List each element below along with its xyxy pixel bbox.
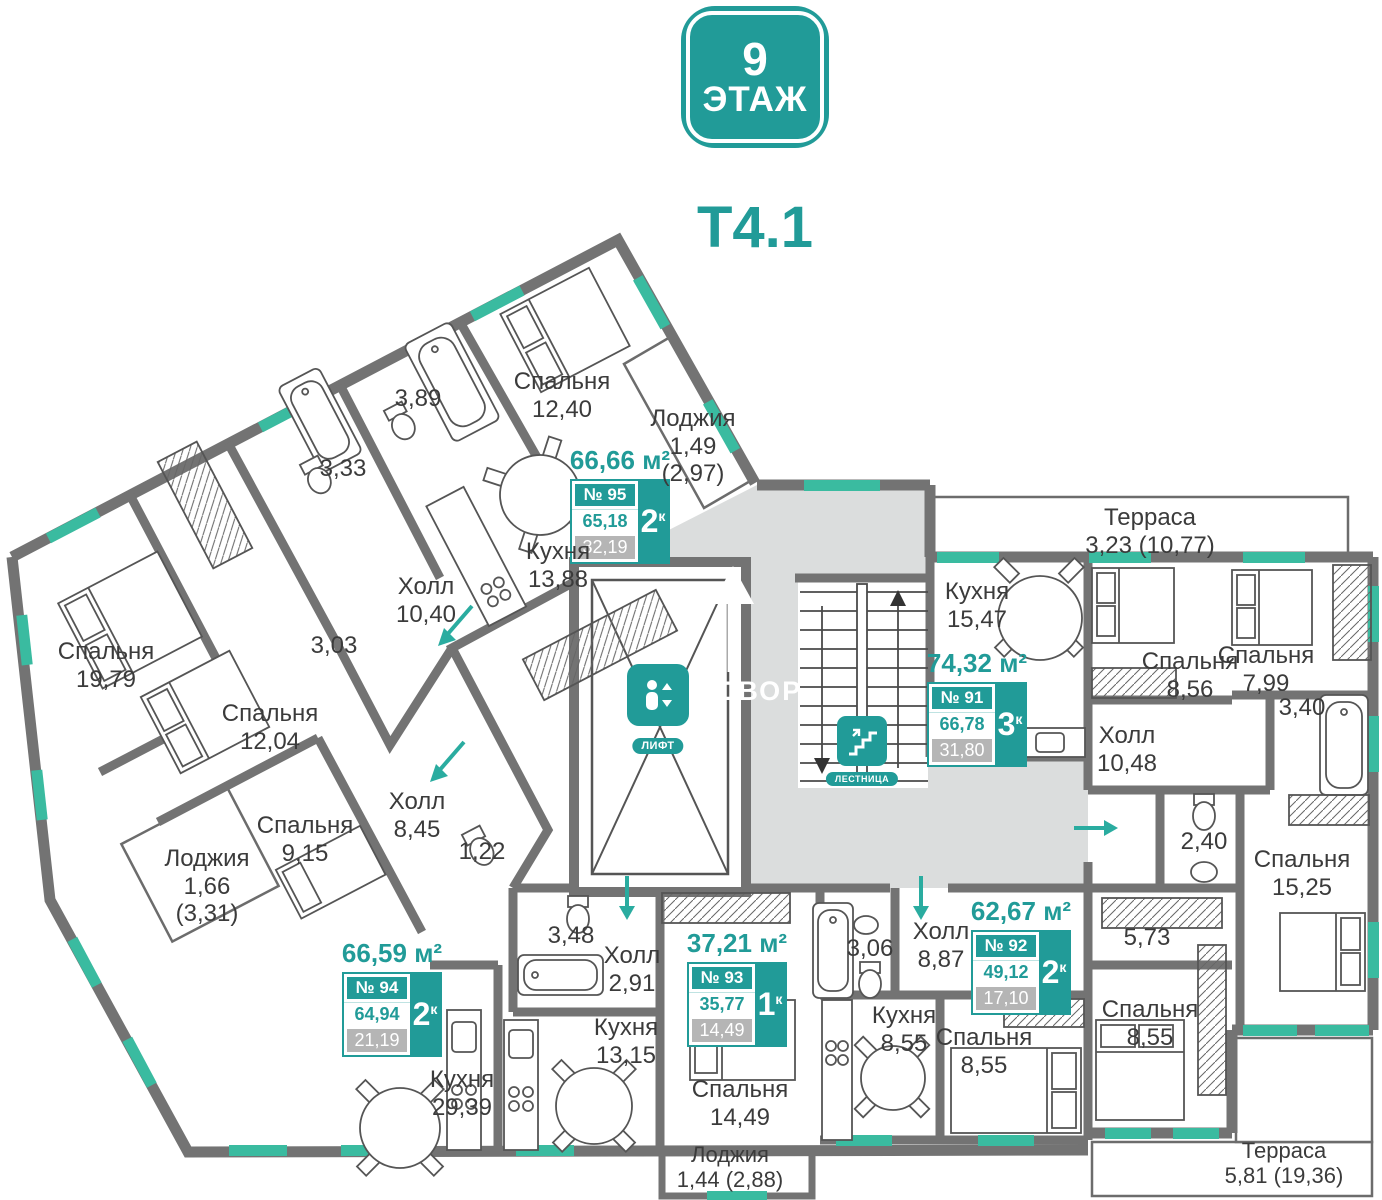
room-label: 3,89 [395, 385, 442, 413]
apartment-total-area: 37,21 м² [667, 928, 807, 959]
floor-plan-page: 9 ЭТАЖ Т4.1 ВО ДВОР ЛИФТ ЛЕСТНИЦА 66,66 … [0, 0, 1382, 1200]
apartment-room-count: 3к [995, 684, 1025, 765]
apartment-living-area: 65,18 [572, 509, 638, 533]
room-label: Лоджия1,44 (2,88) [677, 1142, 783, 1193]
kitchen-counter [504, 1020, 538, 1150]
room-label: 3,48 [548, 922, 595, 950]
apartment-living-area: 66,78 [929, 712, 995, 736]
room-label: 5,73 [1124, 924, 1171, 952]
apartment-living-area: 64,94 [344, 1002, 410, 1026]
room-label: Холл8,45 [389, 788, 446, 843]
room-label: 3,40 [1279, 694, 1326, 722]
kitchen-counter [822, 1000, 852, 1140]
apartment-extra-area: 21,19 [347, 1029, 407, 1052]
room-label: Лоджия1,66(3,31) [164, 845, 249, 928]
room-label: Спальня12,04 [222, 700, 318, 755]
room-label: Терраса5,81 (19,36) [1225, 1138, 1344, 1189]
apartment-room-count: 1к [755, 964, 785, 1045]
floor-badge: 9 ЭТАЖ [681, 6, 829, 148]
apartment-living-area: 35,77 [689, 992, 755, 1016]
room-label: Спальня14,49 [692, 1076, 788, 1131]
room-label: Спальня12,40 [514, 368, 610, 423]
apartment-room-count: 2к [638, 481, 668, 562]
room-label: Лоджия1,49(2,97) [650, 405, 735, 488]
bathtub [1320, 695, 1368, 795]
room-label: Спальня15,25 [1254, 846, 1350, 901]
bathtub [518, 955, 603, 995]
room-label: Холл2,91 [604, 942, 661, 997]
apartment-extra-area: 17,10 [976, 987, 1036, 1010]
stairs-label: ЛЕСТНИЦА [826, 772, 898, 786]
apartment-extra-area: 14,49 [692, 1019, 752, 1042]
room-label: Спальня19,79 [58, 638, 154, 693]
apartment-extra-area: 31,80 [932, 739, 992, 762]
room-label: Спальня8,55 [1102, 996, 1198, 1051]
room-label: Холл10,40 [396, 573, 456, 628]
lift-icon [627, 664, 689, 726]
apartment-number: № 94 [347, 977, 407, 999]
room-label: 3,33 [320, 455, 367, 483]
apartment-card-93: 37,21 м² № 93 35,77 14,49 1к [667, 928, 807, 1047]
room-label: 3,06 [847, 935, 894, 963]
floor-word: ЭТАЖ [703, 82, 808, 119]
lift-label: ЛИФТ [632, 738, 683, 754]
apartment-total-area: 74,32 м² [907, 648, 1047, 679]
toilet [859, 962, 881, 998]
bathtub [403, 321, 500, 443]
floor-number: 9 [742, 36, 768, 82]
room-label: Холл10,48 [1097, 722, 1157, 777]
apartment-number: № 95 [575, 484, 635, 506]
room-label: 3,03 [311, 632, 358, 660]
section-title: Т4.1 [697, 194, 813, 261]
room-label: Кухня29,39 [430, 1066, 494, 1121]
room-label: Терраса3,23 (10,77) [1085, 504, 1214, 559]
apartment-room-count: 2к [1039, 932, 1069, 1013]
apartment-number: № 91 [932, 687, 992, 709]
sink [1191, 862, 1217, 882]
room-label: Спальня8,55 [936, 1024, 1032, 1079]
apartment-card-91: 74,32 м² № 91 66,78 31,80 3к [907, 648, 1047, 767]
apartment-living-area: 49,12 [973, 960, 1039, 984]
room-label: Спальня7,99 [1218, 642, 1314, 697]
room-label: 2,40 [1181, 828, 1228, 856]
toilet [1193, 794, 1215, 830]
room-label: Холл8,87 [913, 918, 970, 973]
apartment-card-92: 62,67 м² № 92 49,12 17,10 2к [951, 896, 1091, 1015]
apartment-total-area: 66,59 м² [322, 938, 462, 969]
stairs-icon [837, 716, 887, 766]
room-label: Спальня9,15 [257, 812, 353, 867]
room-label: Кухня8,55 [872, 1002, 936, 1057]
room-label: Кухня13,15 [594, 1014, 658, 1069]
apartment-card-94: 66,59 м² № 94 64,94 21,19 2к [322, 938, 462, 1057]
apartment-room-count: 2к [410, 974, 440, 1055]
dining-table [552, 1060, 635, 1152]
apartment-number: № 92 [976, 935, 1036, 957]
room-label: 1,22 [459, 838, 506, 866]
apartment-total-area: 62,67 м² [951, 896, 1091, 927]
room-label: Кухня15,47 [945, 578, 1009, 633]
sink [854, 916, 878, 934]
apartment-number: № 93 [692, 967, 752, 989]
room-label: Кухня13,88 [526, 538, 590, 593]
